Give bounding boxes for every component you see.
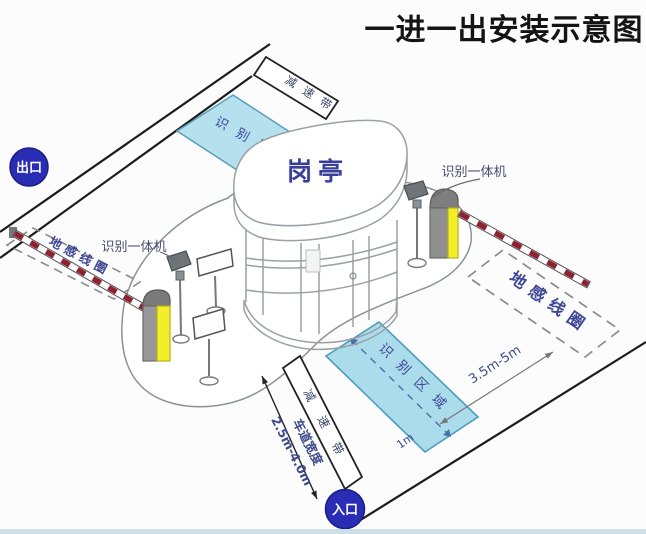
exit-badge-label: 出口 [16,160,42,176]
bottom-strip [0,529,646,534]
exit-badge: 出口 [10,148,48,186]
installation-diagram: 减速带 识别区域 地感线圈 识别区域 1m 减速带 地感线圈 3.5m-5m 车… [0,0,646,534]
camera-label-right: 识别一体机 [441,165,506,180]
barrier-gate-left [143,290,170,361]
page-title: 一进一出安装示意图 [365,13,644,48]
barrier-gate-right [430,189,458,258]
booth-label: 岗亭 [287,157,349,186]
entry-badge: 入口 [326,490,365,529]
diagram-canvas: 减速带 识别区域 地感线圈 识别区域 1m 减速带 地感线圈 3.5m-5m 车… [0,0,646,534]
entry-badge-label: 入口 [332,503,358,518]
camera-label-left: 识别一体机 [101,240,166,255]
